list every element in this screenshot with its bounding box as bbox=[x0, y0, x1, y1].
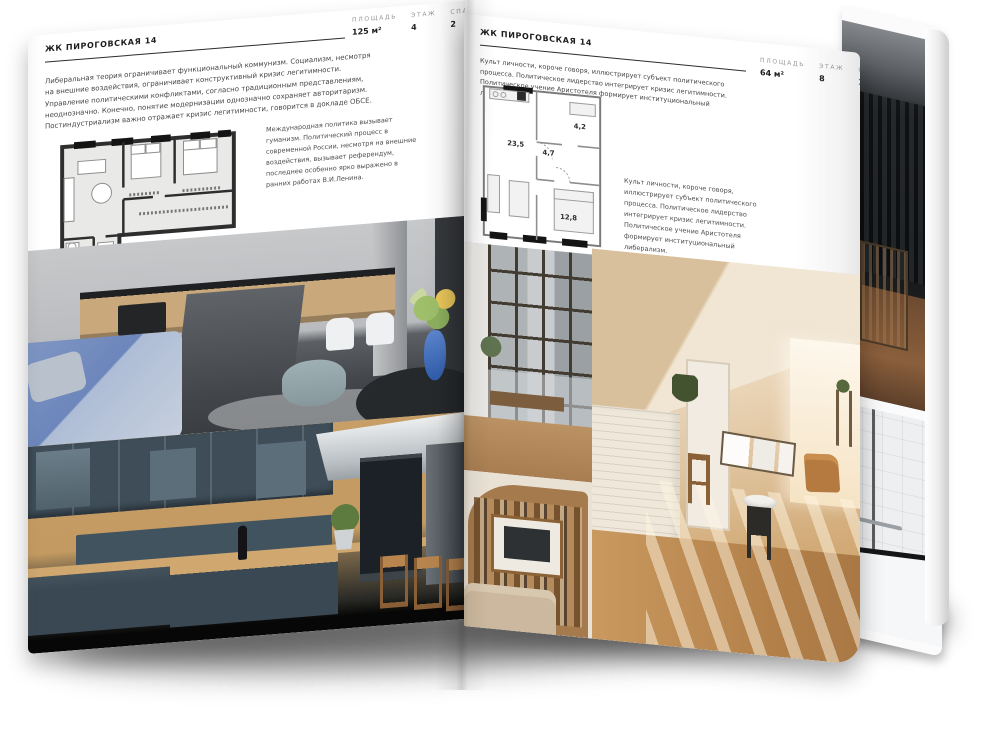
page-stack-edge bbox=[925, 28, 949, 628]
floor-plan-64m2: 23,5 4,7 4,2 12,8 bbox=[476, 79, 608, 254]
tv-screen bbox=[504, 526, 550, 563]
left-page-title: ЖК ПИРОГОВСКАЯ 14 bbox=[45, 36, 157, 54]
white-chair-2 bbox=[366, 312, 394, 346]
stat-bedrooms: СПАЛЕН 1 bbox=[858, 67, 860, 91]
right-page-title: ЖК ПИРОГОВСКАЯ 14 bbox=[480, 28, 592, 48]
potted-plant bbox=[672, 373, 698, 416]
bar-stool-2 bbox=[414, 556, 442, 610]
stat-floor-label: ЭТАЖ bbox=[819, 63, 844, 72]
stat-floor: ЭТАЖ 8 bbox=[819, 63, 844, 85]
wine-bottle bbox=[238, 525, 247, 560]
stat-area: ПЛОЩАДЬ 125 м² bbox=[352, 13, 397, 37]
oven bbox=[118, 302, 166, 336]
photo-shelving-tv bbox=[464, 470, 592, 639]
beige-sofa bbox=[464, 582, 556, 635]
room-bedroom-label: 12,8 bbox=[560, 213, 577, 223]
brochure-mockup-scene: ЖК ПИРОГОВСКАЯ 14 ПЛОЩАДЬ 125 м² ЭТАЖ 4 … bbox=[0, 0, 991, 740]
photo-sunny-attic-room bbox=[592, 249, 860, 665]
stat-bedrooms-label: СПАЛЕН bbox=[450, 6, 465, 16]
stat-bedrooms-value: 1 bbox=[858, 78, 860, 91]
stat-bedrooms-label: СПАЛЕН bbox=[858, 67, 860, 78]
left-stats: ПЛОЩАДЬ 125 м² ЭТАЖ 4 СПАЛЕН 2 bbox=[352, 6, 465, 37]
left-side-paragraph: Международная политика вызывает гуманизм… bbox=[266, 113, 418, 192]
floor-plan-64m2-svg: 23,5 4,7 4,2 12,8 bbox=[476, 79, 608, 254]
stat-area-label: ПЛОЩАДЬ bbox=[352, 13, 397, 24]
kitchen-island bbox=[170, 550, 338, 628]
stat-floor-value: 8 bbox=[819, 74, 844, 85]
stat-bedrooms-value: 2 bbox=[450, 17, 465, 29]
loft-wire-chair bbox=[860, 240, 908, 352]
plant-stand bbox=[836, 389, 852, 447]
photo-teal-kitchen bbox=[28, 412, 465, 654]
stat-floor-label: ЭТАЖ bbox=[411, 10, 436, 19]
photo-grey-kitchen bbox=[28, 216, 465, 447]
leaning-picture-frames bbox=[720, 430, 796, 476]
room-bath-label: 4,2 bbox=[574, 122, 586, 131]
stat-area-value: 64 м² bbox=[760, 68, 805, 81]
black-chair bbox=[747, 506, 771, 560]
stat-bedrooms: СПАЛЕН 2 bbox=[450, 6, 465, 29]
bar-stool-3 bbox=[446, 557, 465, 611]
leather-chair bbox=[803, 454, 840, 493]
stat-area-label: ПЛОЩАДЬ bbox=[760, 57, 805, 68]
right-stats: ПЛОЩАДЬ 64 м² ЭТАЖ 8 СПАЛЕН 1 bbox=[760, 57, 860, 90]
glass-cabinet-panes bbox=[36, 448, 90, 510]
bar-stool bbox=[380, 554, 408, 608]
stat-floor-value: 4 bbox=[411, 21, 436, 32]
stat-floor: ЭТАЖ 4 bbox=[411, 10, 436, 32]
wooden-chair bbox=[688, 453, 710, 505]
photo-window-balcony bbox=[464, 242, 592, 483]
herb-plant bbox=[328, 498, 362, 535]
left-page: ЖК ПИРОГОВСКАЯ 14 ПЛОЩАДЬ 125 м² ЭТАЖ 4 … bbox=[28, 1, 465, 654]
room-hall-label: 4,7 bbox=[542, 148, 554, 157]
room-living-label: 23,5 bbox=[507, 139, 524, 149]
white-chair bbox=[326, 317, 354, 351]
right-page: ЖК ПИРОГОВСКАЯ 14 ПЛОЩАДЬ 64 м² ЭТАЖ 8 С… bbox=[464, 14, 860, 665]
stat-area: ПЛОЩАДЬ 64 м² bbox=[760, 57, 805, 81]
stat-area-value: 125 м² bbox=[352, 24, 397, 37]
